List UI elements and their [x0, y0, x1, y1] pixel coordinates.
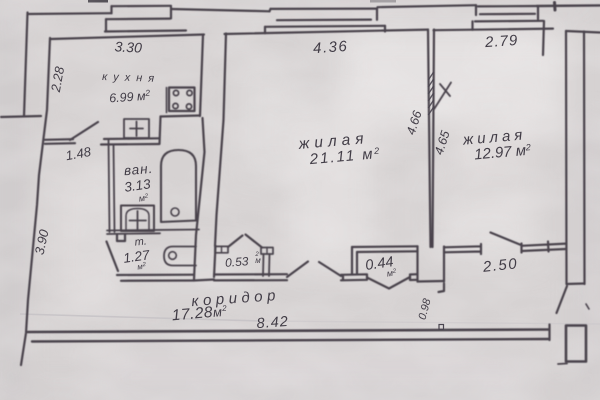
svg-text:4.36: 4.36: [313, 38, 349, 57]
svg-text:ван.: ван.: [123, 161, 154, 179]
svg-text:0.53: 0.53: [225, 254, 250, 270]
svg-text:2: 2: [254, 252, 259, 258]
svg-text:3.30: 3.30: [114, 38, 142, 55]
svg-text:8.42: 8.42: [256, 314, 289, 332]
svg-text:6.99 м2: 6.99 м2: [109, 88, 151, 106]
svg-text:2.79: 2.79: [484, 32, 519, 51]
svg-text:т.: т.: [134, 235, 147, 248]
svg-text:кухня: кухня: [102, 71, 161, 85]
